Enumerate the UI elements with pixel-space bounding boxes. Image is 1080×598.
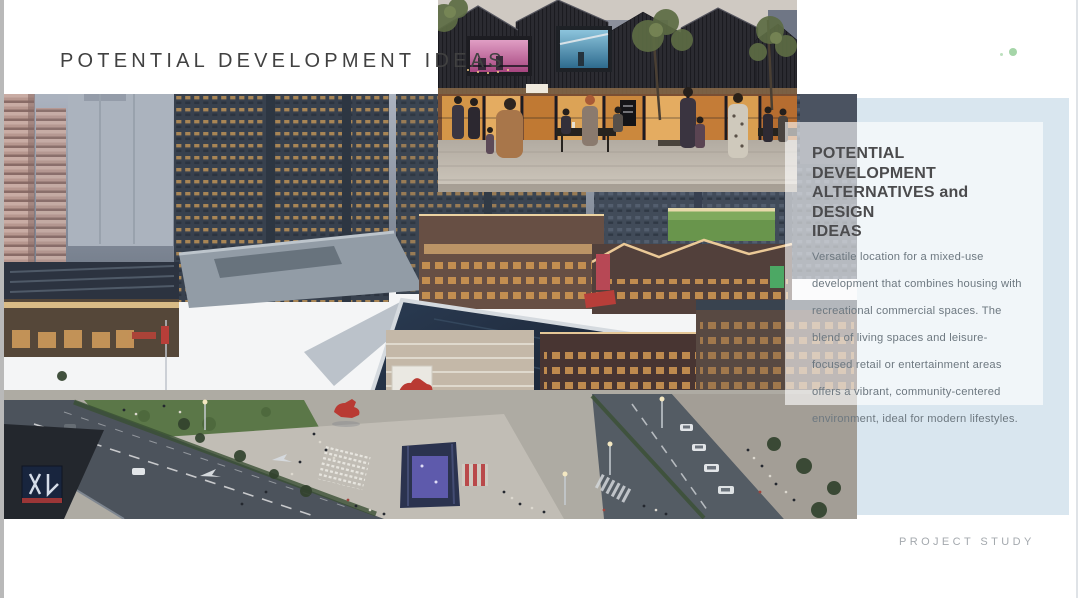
footer-label: PROJECT STUDY [899, 536, 1035, 548]
green-dot-small-icon [1000, 53, 1003, 56]
slide-canvas: POTENTIAL DEVELOPMENT IDEAS POTENTIAL DE… [0, 0, 1080, 598]
hanging-sign [526, 84, 548, 93]
left-edge-strip [0, 0, 4, 598]
card-body: Versatile location for a mixed-use devel… [812, 244, 1024, 433]
card-heading: POTENTIAL DEVELOPMENT ALTERNATIVES and D… [812, 144, 1025, 242]
foreground-shadow [438, 184, 797, 192]
right-edge-line [1076, 0, 1078, 598]
page-title: POTENTIAL DEVELOPMENT IDEAS [60, 50, 506, 73]
wood-soffit [438, 88, 797, 94]
street-photo [438, 0, 797, 192]
title-band: POTENTIAL DEVELOPMENT IDEAS [4, 0, 438, 94]
info-card: POTENTIAL DEVELOPMENT ALTERNATIVES and D… [785, 122, 1043, 405]
green-dot-icon [1009, 48, 1017, 56]
